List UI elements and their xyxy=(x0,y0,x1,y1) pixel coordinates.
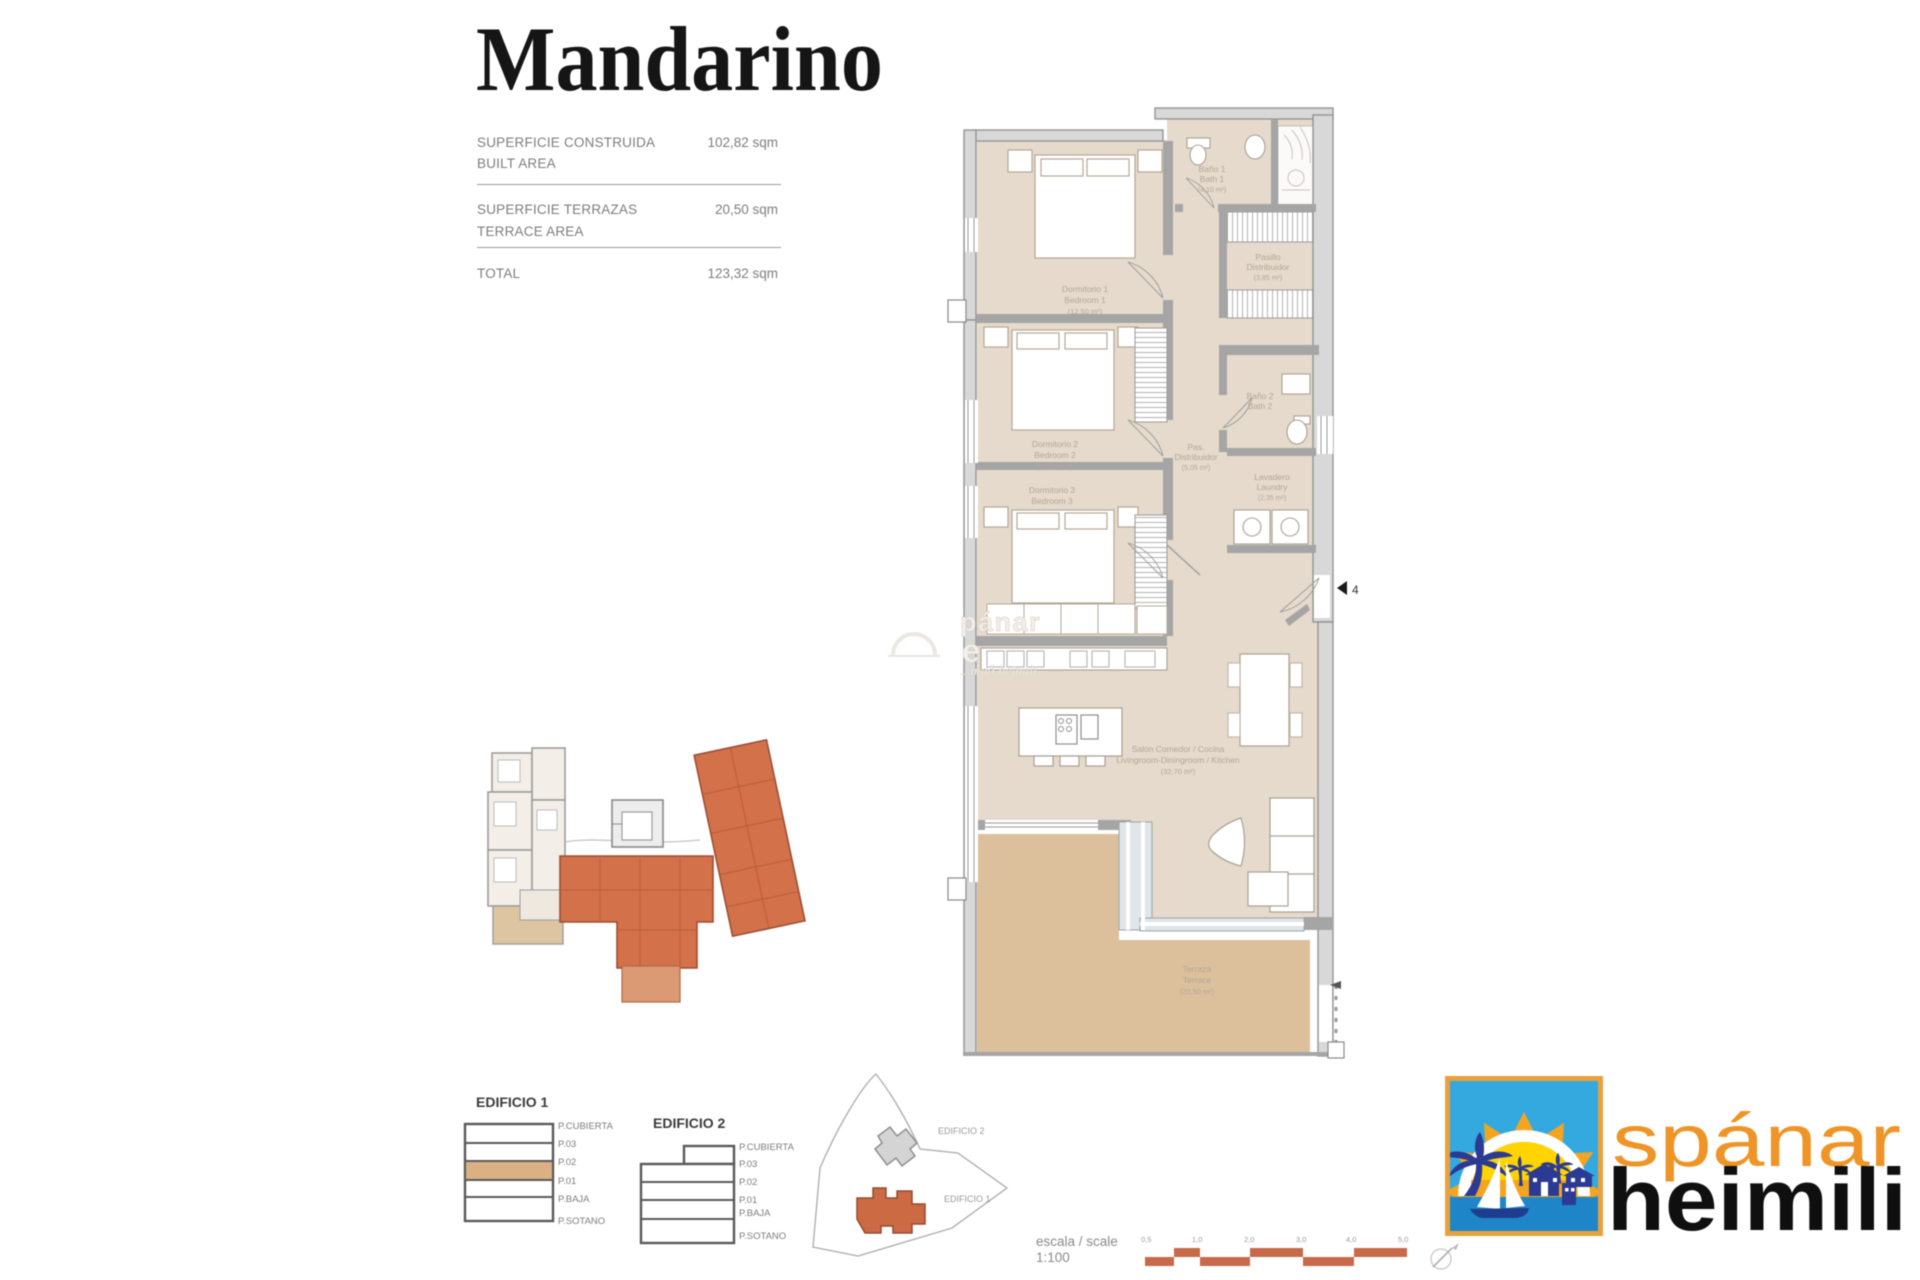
svg-text:(10,20 m²): (10,20 m²) xyxy=(1038,462,1073,471)
svg-text:0,5: 0,5 xyxy=(1141,1235,1151,1244)
svg-text:Lavadero: Lavadero xyxy=(1254,472,1290,482)
svg-text:EDIFICIO 2: EDIFICIO 2 xyxy=(938,1126,985,1136)
svg-text:EDIFICIO 1: EDIFICIO 1 xyxy=(944,1194,991,1204)
svg-text:Distribuidor: Distribuidor xyxy=(1247,262,1290,272)
svg-text:4,0: 4,0 xyxy=(1346,1235,1356,1244)
svg-text:P.SOTANO: P.SOTANO xyxy=(558,1216,605,1227)
svg-text:Terraza: Terraza xyxy=(1183,964,1212,974)
svg-text:Baño 2: Baño 2 xyxy=(1247,391,1274,401)
svg-text:P.03: P.03 xyxy=(739,1159,757,1170)
svg-text:3,0: 3,0 xyxy=(1296,1235,1306,1244)
svg-text:Bedroom 3: Bedroom 3 xyxy=(1031,496,1073,506)
svg-text:4: 4 xyxy=(1352,583,1359,597)
svg-text:Bath 1: Bath 1 xyxy=(1200,174,1225,184)
svg-text:P.02: P.02 xyxy=(558,1157,576,1168)
svg-text:heimili: heimili xyxy=(1607,1150,1907,1249)
svg-text:Dormitorio 2: Dormitorio 2 xyxy=(1032,439,1079,449)
svg-text:Dormitorio 3: Dormitorio 3 xyxy=(1029,485,1076,495)
svg-text:EDIFICIO 2: EDIFICIO 2 xyxy=(653,1115,726,1131)
svg-text:P.03: P.03 xyxy=(558,1139,576,1150)
svg-text:Bath 2: Bath 2 xyxy=(1248,401,1273,411)
svg-text:(12,50 m²): (12,50 m²) xyxy=(1068,307,1103,316)
svg-text:EDIFICIO 1: EDIFICIO 1 xyxy=(476,1094,549,1110)
svg-text:1,0: 1,0 xyxy=(1192,1235,1202,1244)
svg-text:Dormitorio 1: Dormitorio 1 xyxy=(1062,284,1109,294)
svg-text:escala / scale: escala / scale xyxy=(1036,1234,1118,1249)
svg-text:P.01: P.01 xyxy=(739,1195,757,1206)
svg-text:Bedroom 2: Bedroom 2 xyxy=(1034,450,1076,460)
svg-text:(20,50 m²): (20,50 m²) xyxy=(1180,987,1215,996)
svg-text:...mað heimili: ...mað heimili xyxy=(960,664,1037,679)
svg-text:P.02: P.02 xyxy=(739,1177,757,1188)
svg-text:1:100: 1:100 xyxy=(1036,1250,1070,1265)
svg-text:2,0: 2,0 xyxy=(1244,1235,1254,1244)
svg-text:Laundry: Laundry xyxy=(1257,482,1288,492)
svg-text:P.CUBIERTA: P.CUBIERTA xyxy=(558,1121,614,1132)
svg-text:P.BAJA: P.BAJA xyxy=(739,1208,771,1219)
svg-text:P.01: P.01 xyxy=(558,1176,576,1187)
svg-text:P.SOTANO: P.SOTANO xyxy=(739,1231,786,1242)
svg-text:(5,05 m²): (5,05 m²) xyxy=(1182,465,1210,472)
svg-text:(32,70 m²): (32,70 m²) xyxy=(1161,767,1196,776)
svg-text:5,0: 5,0 xyxy=(1398,1235,1408,1244)
svg-text:(2,35 m²): (2,35 m²) xyxy=(1258,495,1286,502)
svg-text:Baño 1: Baño 1 xyxy=(1199,164,1226,174)
svg-text:Salón Comedor / Cocina: Salón Comedor / Cocina xyxy=(1132,744,1225,754)
svg-text:P.BAJA: P.BAJA xyxy=(558,1194,590,1205)
svg-text:Livingroom-Diningroom / Kitche: Livingroom-Diningroom / Kitchen xyxy=(1116,755,1240,765)
svg-text:Pas.: Pas. xyxy=(1187,442,1204,452)
svg-text:Bedroom 1: Bedroom 1 xyxy=(1064,295,1106,305)
svg-text:Pasillo: Pasillo xyxy=(1255,252,1280,262)
svg-text:P.CUBIERTA: P.CUBIERTA xyxy=(739,1142,795,1153)
svg-text:(3,85 m²): (3,85 m²) xyxy=(1254,275,1282,282)
svg-text:(4,10 m²): (4,10 m²) xyxy=(1198,187,1226,194)
svg-text:Distribuidor: Distribuidor xyxy=(1175,452,1218,462)
svg-text:Terrace: Terrace xyxy=(1183,975,1212,985)
